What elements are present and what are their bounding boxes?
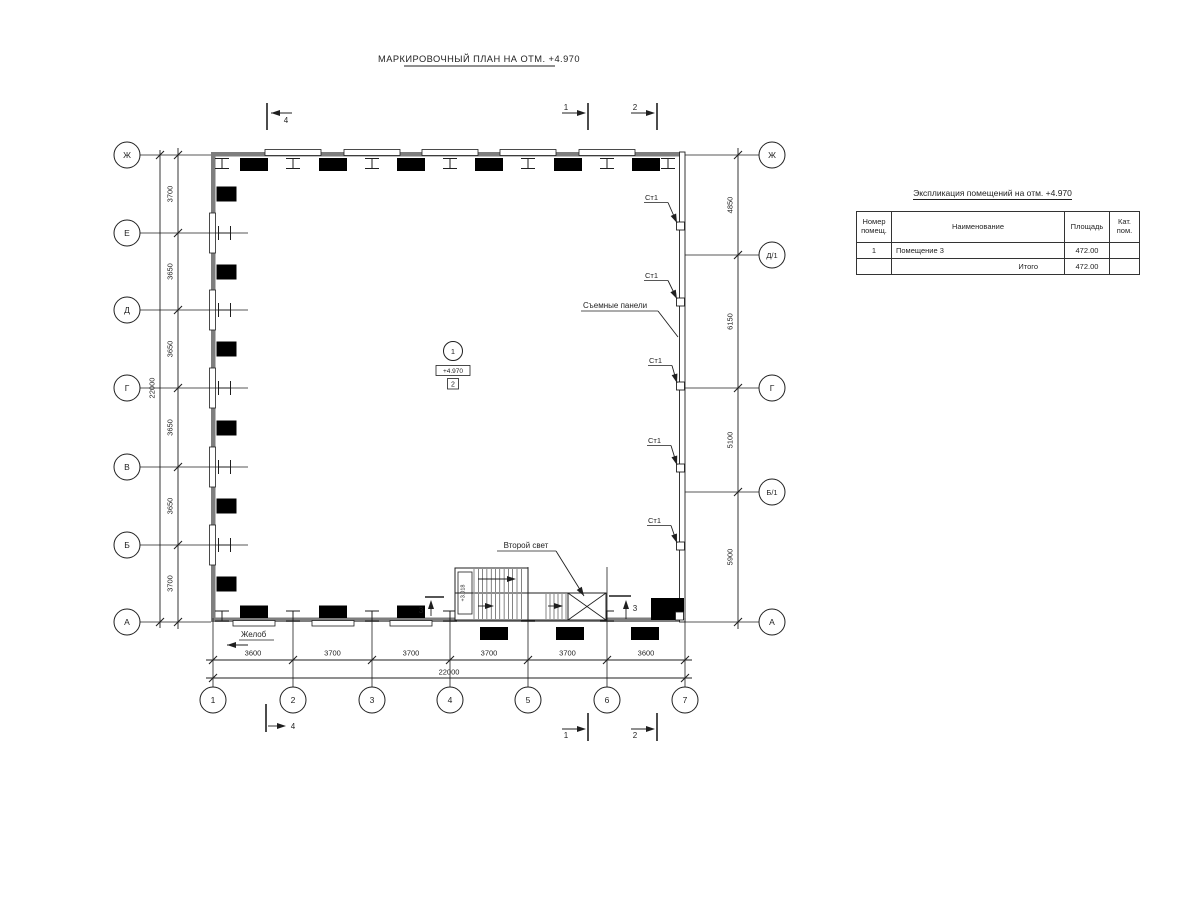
- cell-room-name: Помещение 3: [892, 243, 1065, 259]
- st1-label: Ст1: [645, 193, 658, 202]
- removable-panels-label: Съемные панели: [583, 301, 647, 310]
- section-label: 3: [633, 604, 638, 613]
- rooms-table: Номер помещ. Наименование Площадь Кат. п…: [856, 211, 1140, 275]
- section-arrow-icon: [646, 726, 655, 732]
- column-block: [480, 627, 508, 640]
- removable-panel: [500, 150, 556, 156]
- col-number: Номер помещ.: [857, 212, 892, 243]
- column-block: [475, 158, 503, 171]
- dim-text: 3700: [559, 649, 576, 658]
- gutter-label: Желоб: [241, 630, 267, 639]
- axis-label: Б/1: [766, 488, 777, 497]
- dim-text: 5100: [726, 432, 735, 449]
- section-arrow-icon: [577, 110, 586, 116]
- removable-panel: [265, 150, 321, 156]
- axis-label: Ж: [123, 150, 131, 160]
- dim-text: 3650: [166, 498, 175, 515]
- drawing-title: МАРКИРОВОЧНЫЙ ПЛАН НА ОТМ. +4.970: [378, 53, 580, 64]
- dim-total: 22000: [439, 668, 460, 677]
- section-label: 1: [564, 103, 569, 112]
- axis-label: Д/1: [766, 251, 777, 260]
- section-label: 4: [291, 722, 296, 731]
- axis-label: Г: [125, 383, 130, 393]
- cell-empty: [857, 259, 892, 275]
- column-block: [217, 499, 237, 514]
- dim-text: 4850: [726, 197, 735, 214]
- col-category: Кат. пом.: [1110, 212, 1140, 243]
- dim-total: 22000: [148, 378, 157, 399]
- column-block: [217, 421, 237, 436]
- dim-text: 3650: [166, 263, 175, 280]
- column-block: [397, 158, 425, 171]
- axis-label: А: [124, 617, 130, 627]
- st1-label: Ст1: [648, 436, 661, 445]
- st1-label: Ст1: [649, 356, 662, 365]
- cell-total-area: 472.00: [1065, 259, 1110, 275]
- axis-label: 5: [526, 695, 531, 705]
- column-block: [240, 606, 268, 619]
- axis-label: 3: [370, 695, 375, 705]
- table-row: 1 Помещение 3 472.00: [857, 243, 1140, 259]
- axis-label: В: [124, 462, 130, 472]
- cell-empty: [1110, 259, 1140, 275]
- dim-text: 6150: [726, 313, 735, 330]
- table-header-row: Номер помещ. Наименование Площадь Кат. п…: [857, 212, 1140, 243]
- axis-label: Ж: [768, 150, 776, 160]
- dim-text: 3700: [166, 186, 175, 203]
- column-block: [217, 342, 237, 357]
- column-block: [554, 158, 582, 171]
- corner-detail: [676, 612, 684, 620]
- section-arrow-icon: [277, 723, 286, 729]
- room-number: 1: [451, 347, 455, 356]
- st1-panel: [677, 222, 685, 230]
- rooms-table-title-text: Экспликация помещений на отм. +4.970: [913, 188, 1072, 200]
- table-total-row: Итого 472.00: [857, 259, 1140, 275]
- dim-text: 3600: [245, 649, 262, 658]
- dim-text: 3700: [166, 575, 175, 592]
- removable-panel: [422, 150, 478, 156]
- col-area: Площадь: [1065, 212, 1110, 243]
- removable-panel: [579, 150, 635, 156]
- room-elevation: +4.970: [443, 368, 463, 375]
- leader-line: [658, 311, 678, 337]
- col-name: Наименование: [892, 212, 1065, 243]
- section-arrow-icon: [646, 110, 655, 116]
- cell-room-area: 472.00: [1065, 243, 1110, 259]
- drawing-sheet: МАРКИРОВОЧНЫЙ ПЛАН НА ОТМ. +4.970 ЖЕДГВБ…: [0, 0, 1200, 900]
- section-label: 3: [419, 606, 424, 615]
- axis-label: А: [769, 617, 775, 627]
- dim-text: 3700: [324, 649, 341, 658]
- second-light-label: Второй свет: [504, 541, 549, 550]
- floor-plan-drawing: МАРКИРОВОЧНЫЙ ПЛАН НА ОТМ. +4.970 ЖЕДГВБ…: [0, 0, 1200, 900]
- dim-text: 3700: [481, 649, 498, 658]
- removable-panel: [233, 621, 275, 627]
- dim-text: 3600: [638, 649, 655, 658]
- section-label: 2: [633, 731, 638, 740]
- removable-panel: [312, 621, 354, 627]
- column-block: [240, 158, 268, 171]
- generated-drawing: ЖЕДГВБАЖД/1ГБ/1А123456737003650365036503…: [114, 103, 785, 741]
- st1-panel: [677, 298, 685, 306]
- column-block: [319, 158, 347, 171]
- axis-label: 4: [448, 695, 453, 705]
- cell-total-label: Итого: [892, 259, 1065, 275]
- section-label: 4: [284, 116, 289, 125]
- dim-text: 5900: [726, 549, 735, 566]
- column-block: [217, 187, 237, 202]
- removable-panel: [344, 150, 400, 156]
- axis-label: Б: [124, 540, 130, 550]
- axis-label: 6: [605, 695, 610, 705]
- gutter-arrow-icon: [227, 642, 236, 648]
- axis-label: Д: [124, 305, 130, 315]
- st1-panel: [677, 464, 685, 472]
- column-block: [217, 577, 237, 592]
- dim-text: 3650: [166, 341, 175, 358]
- column-block: [632, 158, 660, 171]
- axis-label: 2: [291, 695, 296, 705]
- section-arrow-icon: [577, 726, 586, 732]
- cell-room-cat: [1110, 243, 1140, 259]
- column-block: [556, 627, 584, 640]
- rooms-table-title: Экспликация помещений на отм. +4.970: [856, 188, 1129, 198]
- removable-panel: [390, 621, 432, 627]
- axis-label: 1: [211, 695, 216, 705]
- section-arrow-icon: [623, 600, 629, 609]
- axis-label: Е: [124, 228, 130, 238]
- dim-text: 3700: [403, 649, 420, 658]
- rooms-explication: Экспликация помещений на отм. +4.970 Ном…: [856, 188, 1129, 275]
- room-marker: 1 +4.970 2: [436, 342, 470, 390]
- column-block: [631, 627, 659, 640]
- section-arrow-icon: [428, 600, 434, 609]
- cell-room-number: 1: [857, 243, 892, 259]
- column-block: [319, 606, 347, 619]
- st1-label: Ст1: [648, 516, 661, 525]
- st1-label: Ст1: [645, 271, 658, 280]
- st1-panel: [677, 382, 685, 390]
- section-arrow-icon: [271, 110, 280, 116]
- room-zone: 2: [451, 382, 455, 389]
- dim-text: 3650: [166, 419, 175, 436]
- axis-label: Г: [770, 383, 775, 393]
- section-label: 2: [633, 103, 638, 112]
- section-label: 1: [564, 731, 569, 740]
- column-block: [217, 265, 237, 280]
- axis-label: 7: [683, 695, 688, 705]
- st1-panel: [677, 542, 685, 550]
